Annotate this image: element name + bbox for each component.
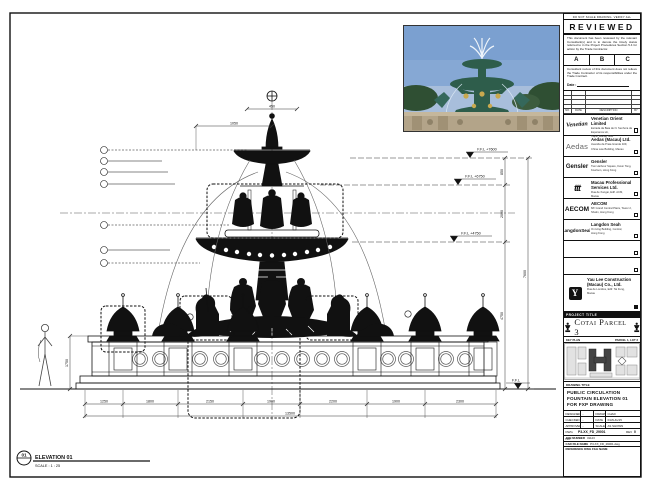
- rev-value: 0: [634, 429, 640, 435]
- revision-table: NO. DATE DESCRIPTION BY: [564, 90, 640, 114]
- consultant-checkbox: [634, 192, 639, 197]
- stamp-date-row: Date :: [564, 81, 640, 90]
- svg-text:1250: 1250: [100, 400, 108, 404]
- consultant-row-aecom: AECOM AECOM 8/F Grand Central Plaza, Tow…: [564, 199, 640, 220]
- contractor-checkbox: [634, 305, 639, 310]
- consultant-row-langdonseah: LangdonSeah Langdon Seah On Hing Buildin…: [564, 220, 640, 241]
- svg-text:F.F.L +7600: F.F.L +7600: [477, 148, 497, 152]
- venetian-logo: Venetian: [563, 114, 590, 136]
- consultant-row-venetian: Venetian Venetian Orient Limited Estrada…: [564, 115, 640, 136]
- reviewed-stamp: DO NOT SCALE DRAWING. VERIFY ALL DIMENSI…: [564, 14, 640, 115]
- consultant-row-gensler: Gensler Gensler Two Harbour Square, Kwun…: [564, 157, 640, 178]
- cad-file-name: P3-XX_FD_29001.dwg: [590, 442, 620, 447]
- basin-wall: [76, 336, 500, 389]
- photo-basin-wall: [404, 112, 560, 132]
- svg-text:1050: 1050: [230, 122, 238, 126]
- key-plan: KEY PLAN PARCEL 1, LOT 3: [564, 337, 640, 382]
- dwg-number-row: DWG NO. P3-XX_FD_29001 REV 0: [564, 429, 640, 436]
- svg-text:450: 450: [269, 105, 275, 109]
- elevation-scale: SCALE : 1 : 25: [35, 464, 60, 468]
- stamp-options: A B C: [564, 54, 640, 66]
- wall-medallions: [133, 352, 473, 367]
- svg-text:F.F.L +6750: F.F.L +6750: [465, 175, 485, 179]
- consultant-checkbox: [634, 213, 639, 218]
- drawing-sheet: { "sheet_note": "DO NOT SCALE DRAWING. V…: [0, 0, 650, 488]
- svg-text:13500: 13500: [285, 412, 295, 416]
- key-plan-map: [564, 343, 640, 380]
- drawing-title-line3: FOR FXP DRAWING: [567, 402, 637, 408]
- finial: [262, 114, 282, 149]
- key-plan-label: KEY PLAN: [566, 338, 580, 342]
- key-plan-parcel: PARCEL 1, LOT 3: [615, 338, 638, 342]
- langdonseah-logo: LangdonSeah: [564, 220, 590, 240]
- aedas-logo: Aedas: [564, 136, 590, 156]
- reference-dwg-row: REFERENCE DWG FILE NAME: [564, 447, 640, 453]
- consultant-name: Langdon Seah: [591, 222, 638, 227]
- reviewed-title: REVIEWED: [564, 20, 640, 35]
- dwg-number: P3-XX_FD_29001: [578, 429, 626, 435]
- svg-text:01: 01: [21, 453, 27, 458]
- consultant-checkbox: [634, 128, 639, 133]
- consultant-checkbox: [634, 234, 639, 239]
- stamp-option-c: C: [615, 55, 640, 65]
- consultant-name: Aedas (Macau) Ltd.: [591, 137, 638, 142]
- empty-consultant-box: [564, 258, 640, 275]
- elevation-label: ELEVATION 01: [35, 455, 73, 461]
- contractor-logo: Y: [564, 275, 586, 311]
- consultant-checkbox: [634, 171, 639, 176]
- level-markers: [450, 152, 530, 389]
- revision-header-row: NO. DATE DESCRIPTION BY: [564, 109, 640, 114]
- project-title: Cotai Parcel 3: [574, 317, 629, 337]
- reference-photo: [403, 25, 560, 132]
- svg-text:F.F.L: F.F.L: [512, 379, 520, 383]
- svg-text:2300: 2300: [456, 400, 464, 404]
- svg-text:2000: 2000: [500, 210, 504, 218]
- svg-text:1800: 1800: [146, 400, 154, 404]
- consultant-row-mps: ttt Macau Professional Services Ltd. Rua…: [564, 178, 640, 199]
- ornament-icon: [633, 322, 640, 333]
- stamp-option-b: B: [590, 55, 616, 65]
- consultant-row-aedas: Aedas Aedas (Macau) Ltd. Avenida da Prai…: [564, 136, 640, 157]
- consultant-name: AECOM: [591, 201, 638, 206]
- svg-text:1900: 1900: [392, 400, 400, 404]
- title-block: DO NOT SCALE DRAWING. VERIFY ALL DIMENSI…: [563, 13, 641, 477]
- svg-text:850: 850: [500, 169, 504, 175]
- svg-text:2200: 2200: [329, 400, 337, 404]
- scale-figure: [38, 324, 52, 386]
- svg-text:F.F.L +4750: F.F.L +4750: [461, 232, 481, 236]
- svg-text:1750: 1750: [65, 359, 69, 367]
- consultant-checkbox: [634, 150, 639, 155]
- mps-logo: ttt: [564, 178, 590, 198]
- svg-text:4750: 4750: [500, 312, 504, 320]
- empty-consultant-box: [564, 241, 640, 258]
- stamp-option-a: A: [564, 55, 590, 65]
- job-number: 31123: [587, 436, 595, 441]
- consultant-name: Macau Professional Services Ltd.: [591, 180, 638, 190]
- elevation-tag: 01 ELEVATION 01 SCALE : 1 : 25: [17, 451, 150, 468]
- aecom-logo: AECOM: [564, 199, 590, 219]
- contractor-box: Y Yau Lee Construction (Macau) Co., Ltd.…: [564, 275, 640, 312]
- project-title-band: Cotai Parcel 3: [564, 318, 640, 337]
- fountain-photo: [404, 26, 560, 132]
- ornament-icon: [564, 322, 571, 333]
- center-mark: [267, 91, 277, 101]
- consultant-name: Venetian Orient Limited: [591, 116, 638, 126]
- dwg-label: DWG NO.: [564, 429, 578, 435]
- drawing-title-box: DRAWING TITLE PUBLIC CIRCULATION FOUNTAI…: [564, 382, 640, 410]
- stamp-paragraph-2: Consultant review of this document does …: [564, 66, 640, 81]
- stamp-date-label: Date :: [567, 83, 576, 87]
- svg-text:2150: 2150: [206, 400, 214, 404]
- signoff-table: DESIGNED - DRAWN CHAD CHECKED - DATE 03/…: [564, 411, 640, 429]
- rev-label: REV: [626, 429, 634, 435]
- fountain-elevation: [20, 91, 556, 420]
- stamp-date-line: [577, 83, 629, 87]
- svg-text:1900: 1900: [267, 400, 275, 404]
- stamp-paragraph-1: This document has been reviewed by the r…: [564, 35, 640, 54]
- consultant-name: Gensler: [591, 159, 638, 164]
- gensler-logo: Gensler: [564, 157, 590, 177]
- svg-text:7600: 7600: [523, 270, 527, 278]
